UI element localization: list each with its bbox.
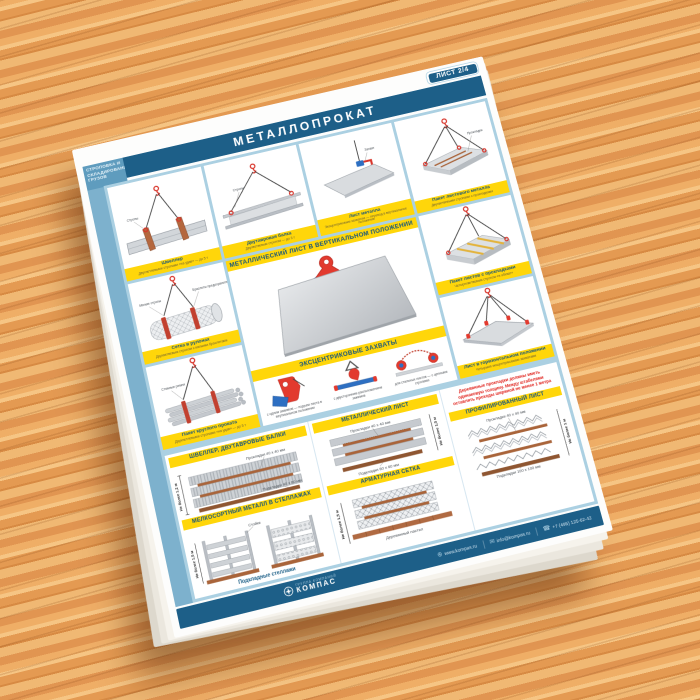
tie-straps-label: Стяжные ремни xyxy=(161,382,186,392)
panel-sheet-pack-sling: Прокладки Пакет листового металла Двухве… xyxy=(393,101,509,214)
height-note: Не более 1 м xyxy=(562,419,573,445)
phone-text: +7 (495) 125-62-42 xyxy=(552,515,592,530)
height-note: Не более 1,2 м xyxy=(174,482,184,511)
posts-label: Стойки xyxy=(248,520,261,527)
footer-email: ✉ info@kompas.ru xyxy=(489,529,531,546)
email-text: info@kompas.ru xyxy=(496,530,531,543)
height-note: Не более 1,5 м xyxy=(335,510,347,540)
footer-website: ⊕ www.kompas.ru xyxy=(437,542,478,559)
panel-ibeam-sling: Стропы Двутавровая балка Двухветвевым ст… xyxy=(203,145,318,259)
strap-label: Стропы xyxy=(232,186,245,193)
panel-sheet-clamp: Захват Лист металла Эксцентриковым захва… xyxy=(299,123,415,236)
footer-divider xyxy=(482,540,485,548)
globe-icon: ⊕ xyxy=(437,551,444,559)
poster-stack: ЛИСТ 2/4 СТРОПОВКА И СКЛАДИРОВАНИЕ ГРУЗО… xyxy=(72,56,613,638)
compass-emblem-icon xyxy=(282,586,294,599)
soft-sling-label: Мягкие стропы xyxy=(139,299,162,308)
phone-icon: ☎ xyxy=(542,524,551,533)
envelope-icon: ✉ xyxy=(489,538,496,546)
height-note: Не более 1,5 м xyxy=(190,550,200,579)
footer-phone: ☎ +7 (495) 125-62-42 xyxy=(542,514,592,533)
clamp-label: Захват xyxy=(364,146,375,152)
website-text: www.kompas.ru xyxy=(444,543,478,556)
strap-label: Стропы xyxy=(126,216,139,223)
spacer-label: Прокладки xyxy=(466,128,483,135)
footer-divider xyxy=(535,527,538,535)
panel-shveller-sling: Стропы Швеллер Двухпетлевыми стропами «н… xyxy=(107,167,221,282)
wood-background: ЛИСТ 2/4 СТРОПОВКА И СКЛАДИРОВАНИЕ ГРУЗО… xyxy=(0,0,700,700)
